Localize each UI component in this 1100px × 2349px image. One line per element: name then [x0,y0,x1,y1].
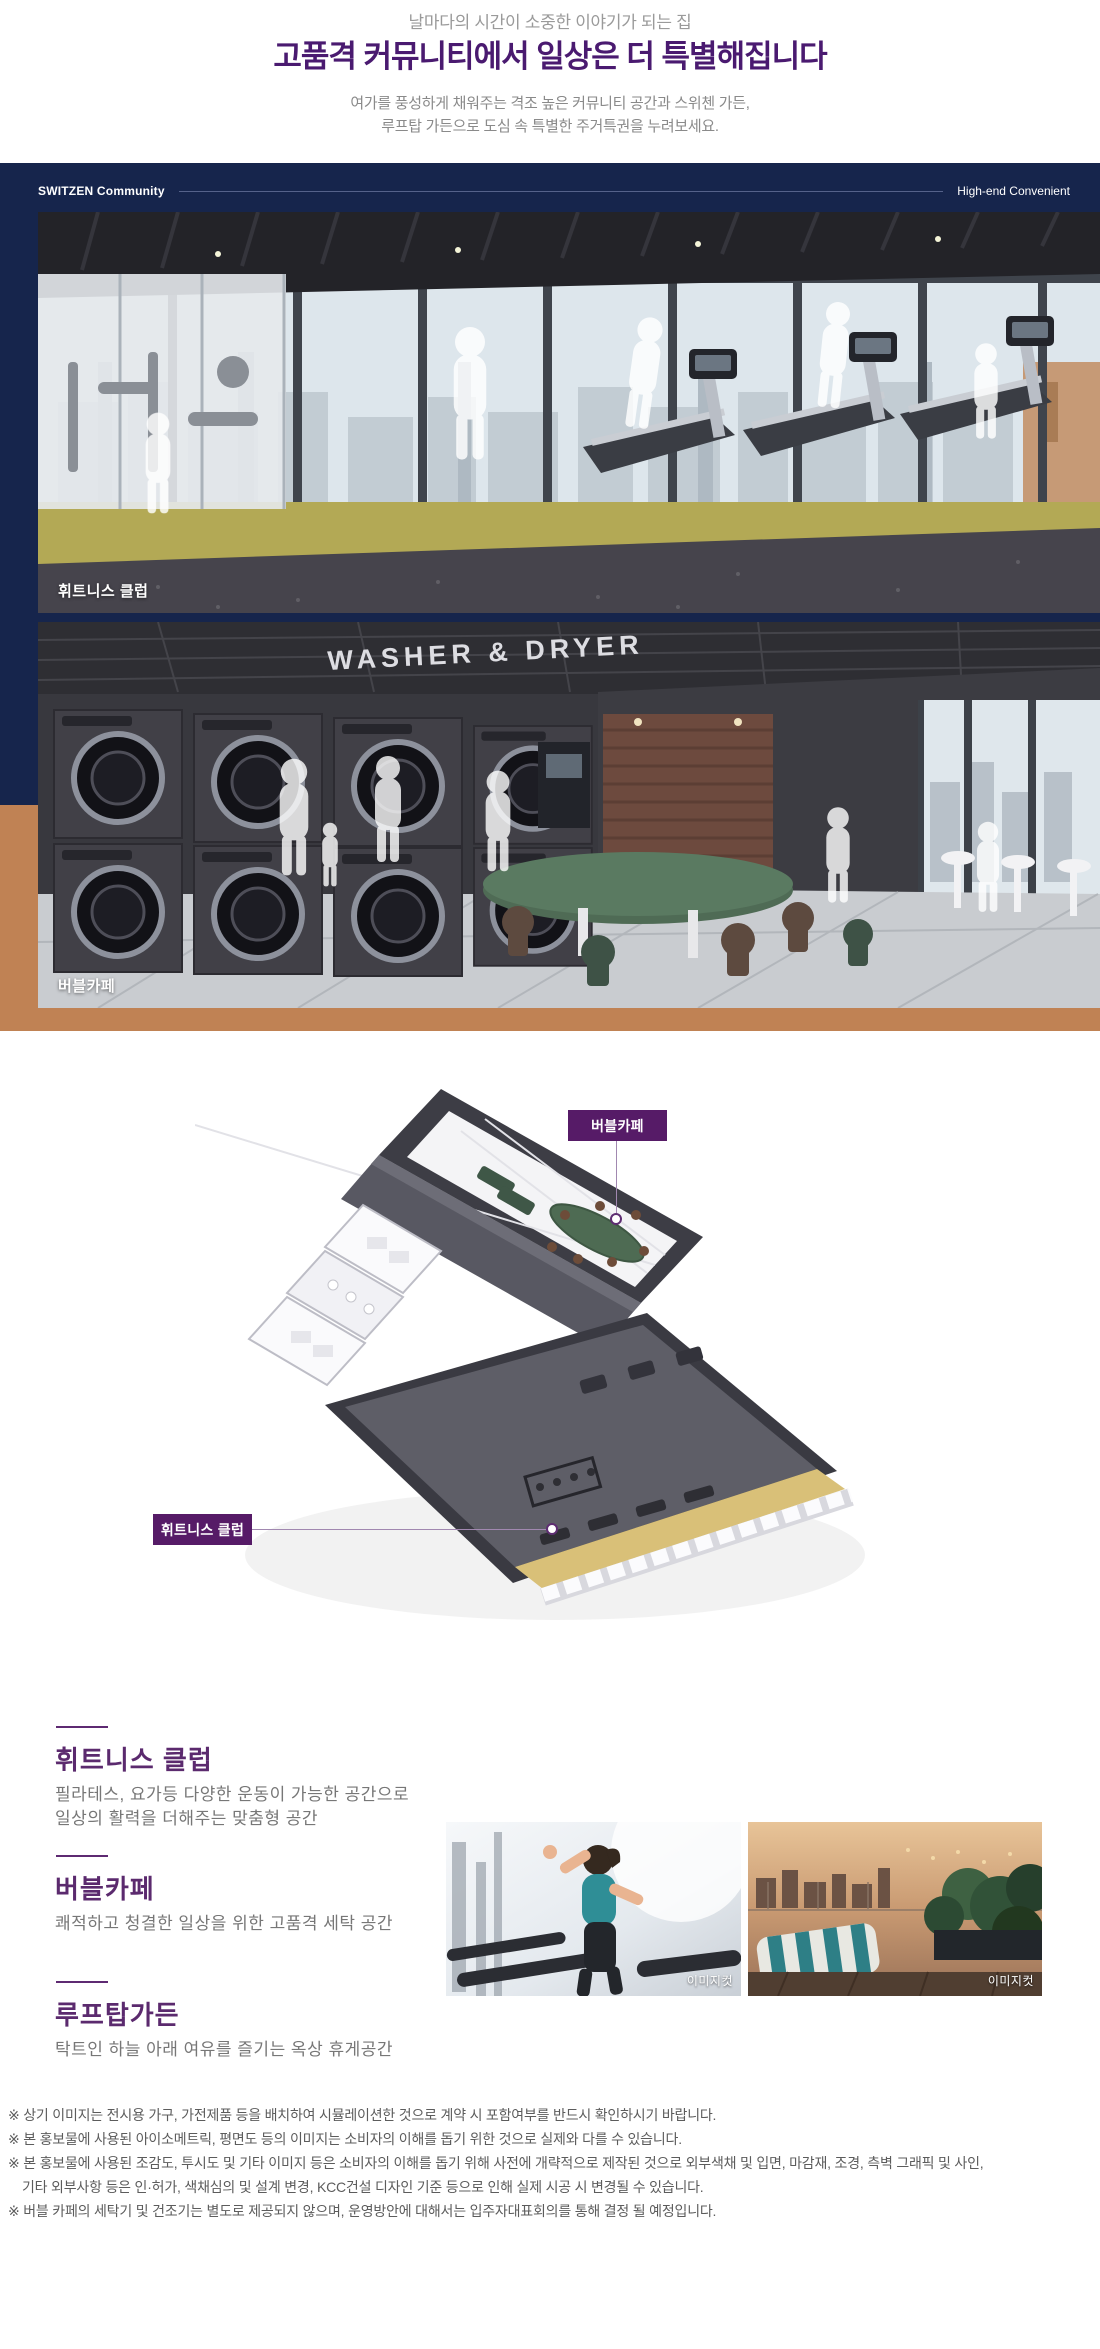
community-band-header: SWITZEN Community High-end Convenient [38,184,1070,198]
band-divider-line [179,191,944,192]
rooftop-photo-illustration [748,1822,1042,1996]
footnotes: ※ 상기 이미지는 전시용 가구, 가전제품 등을 배치하여 시뮬레이션한 것으… [8,2103,1098,2223]
feature-divider [56,1726,108,1728]
floorplan-cafe-label: 버블카페 [568,1110,667,1141]
fitness-connector-line [250,1529,546,1530]
feature-title-cafe: 버블카페 [55,1869,155,1906]
fitness-render-illustration [38,212,1100,613]
footnote-line: ※ 상기 이미지는 전시용 가구, 가전제품 등을 배치하여 시뮬레이션한 것으… [8,2103,1098,2127]
fitness-render-caption: 휘트니스 클럽 [58,580,148,601]
feature-desc-line: 일상의 활력을 더해주는 맞춤형 공간 [55,1807,409,1831]
feature-desc-line: 쾌적하고 청결한 일상을 위한 고품격 세탁 공간 [55,1912,393,1936]
feature-desc-line: 필라테스, 요가등 다양한 운동이 가능한 공간으로 [55,1783,409,1807]
feature-divider [56,1855,108,1857]
bubble-cafe-render-illustration: WASHER & DRYER [38,622,1100,1008]
header-subtitle-line1: 여가를 풍성하게 채워주는 격조 높은 커뮤니티 공간과 스위첸 가든, [0,92,1100,113]
promo-page: 날마다의 시간이 소중한 이야기가 되는 집 고품격 커뮤니티에서 일상은 더 … [0,0,1100,2349]
cafe-connector-line [616,1141,617,1213]
bubble-cafe-render-caption: 버블카페 [58,975,115,996]
image-cut-tag: 이미지컷 [988,1972,1034,1989]
header-eyebrow: 날마다의 시간이 소중한 이야기가 되는 집 [0,8,1100,33]
page-title: 고품격 커뮤니티에서 일상은 더 특별해집니다 [0,31,1100,76]
feature-desc-line: 탁트인 하늘 아래 여유를 즐기는 옥상 휴게공간 [55,2038,393,2062]
footnote-line: ※ 본 홍보물에 사용된 조감도, 투시도 및 기타 이미지 등은 소비자의 이… [8,2151,1098,2175]
header-subtitle-line2: 루프탑 가든으로 도심 속 특별한 주거특권을 누려보세요. [0,115,1100,136]
gym-photo: 이미지컷 [446,1822,741,1996]
floorplan-fitness-label: 휘트니스 클럽 [153,1514,252,1545]
band-left-label: SWITZEN Community [38,184,165,198]
rooftop-photo: 이미지컷 [748,1822,1042,1996]
floorplan-fitness-label-text: 휘트니스 클럽 [161,1520,244,1540]
isometric-floorplan-illustration [195,1085,910,1640]
feature-divider [56,1981,108,1983]
bubble-cafe-render: WASHER & DRYER [38,622,1100,1008]
cafe-marker-ring [610,1213,622,1225]
feature-desc-fitness: 필라테스, 요가등 다양한 운동이 가능한 공간으로 일상의 활력을 더해주는 … [55,1783,409,1831]
fitness-club-render: 휘트니스 클럽 [38,212,1100,613]
footnote-line: ※ 본 홍보물에 사용된 아이소메트릭, 평면도 등의 이미지는 소비자의 이해… [8,2127,1098,2151]
feature-desc-rooftop: 탁트인 하늘 아래 여유를 즐기는 옥상 휴게공간 [55,2038,393,2062]
feature-title-rooftop: 루프탑가든 [55,1995,180,2032]
floorplan-cafe-label-text: 버블카페 [591,1116,644,1136]
footnote-line: ※ 버블 카페의 세탁기 및 건조기는 별도로 제공되지 않으며, 운영방안에 … [8,2199,1098,2223]
feature-desc-cafe: 쾌적하고 청결한 일상을 위한 고품격 세탁 공간 [55,1912,393,1936]
fitness-marker-ring [546,1523,558,1535]
feature-title-fitness: 휘트니스 클럽 [55,1740,213,1777]
gym-photo-illustration [446,1822,741,1996]
footnote-line: 기타 외부사항 등은 인·허가, 색채심의 및 설계 변경, KCC건설 디자인… [8,2175,1098,2199]
image-cut-tag: 이미지컷 [687,1972,733,1989]
band-right-label: High-end Convenient [957,184,1070,198]
